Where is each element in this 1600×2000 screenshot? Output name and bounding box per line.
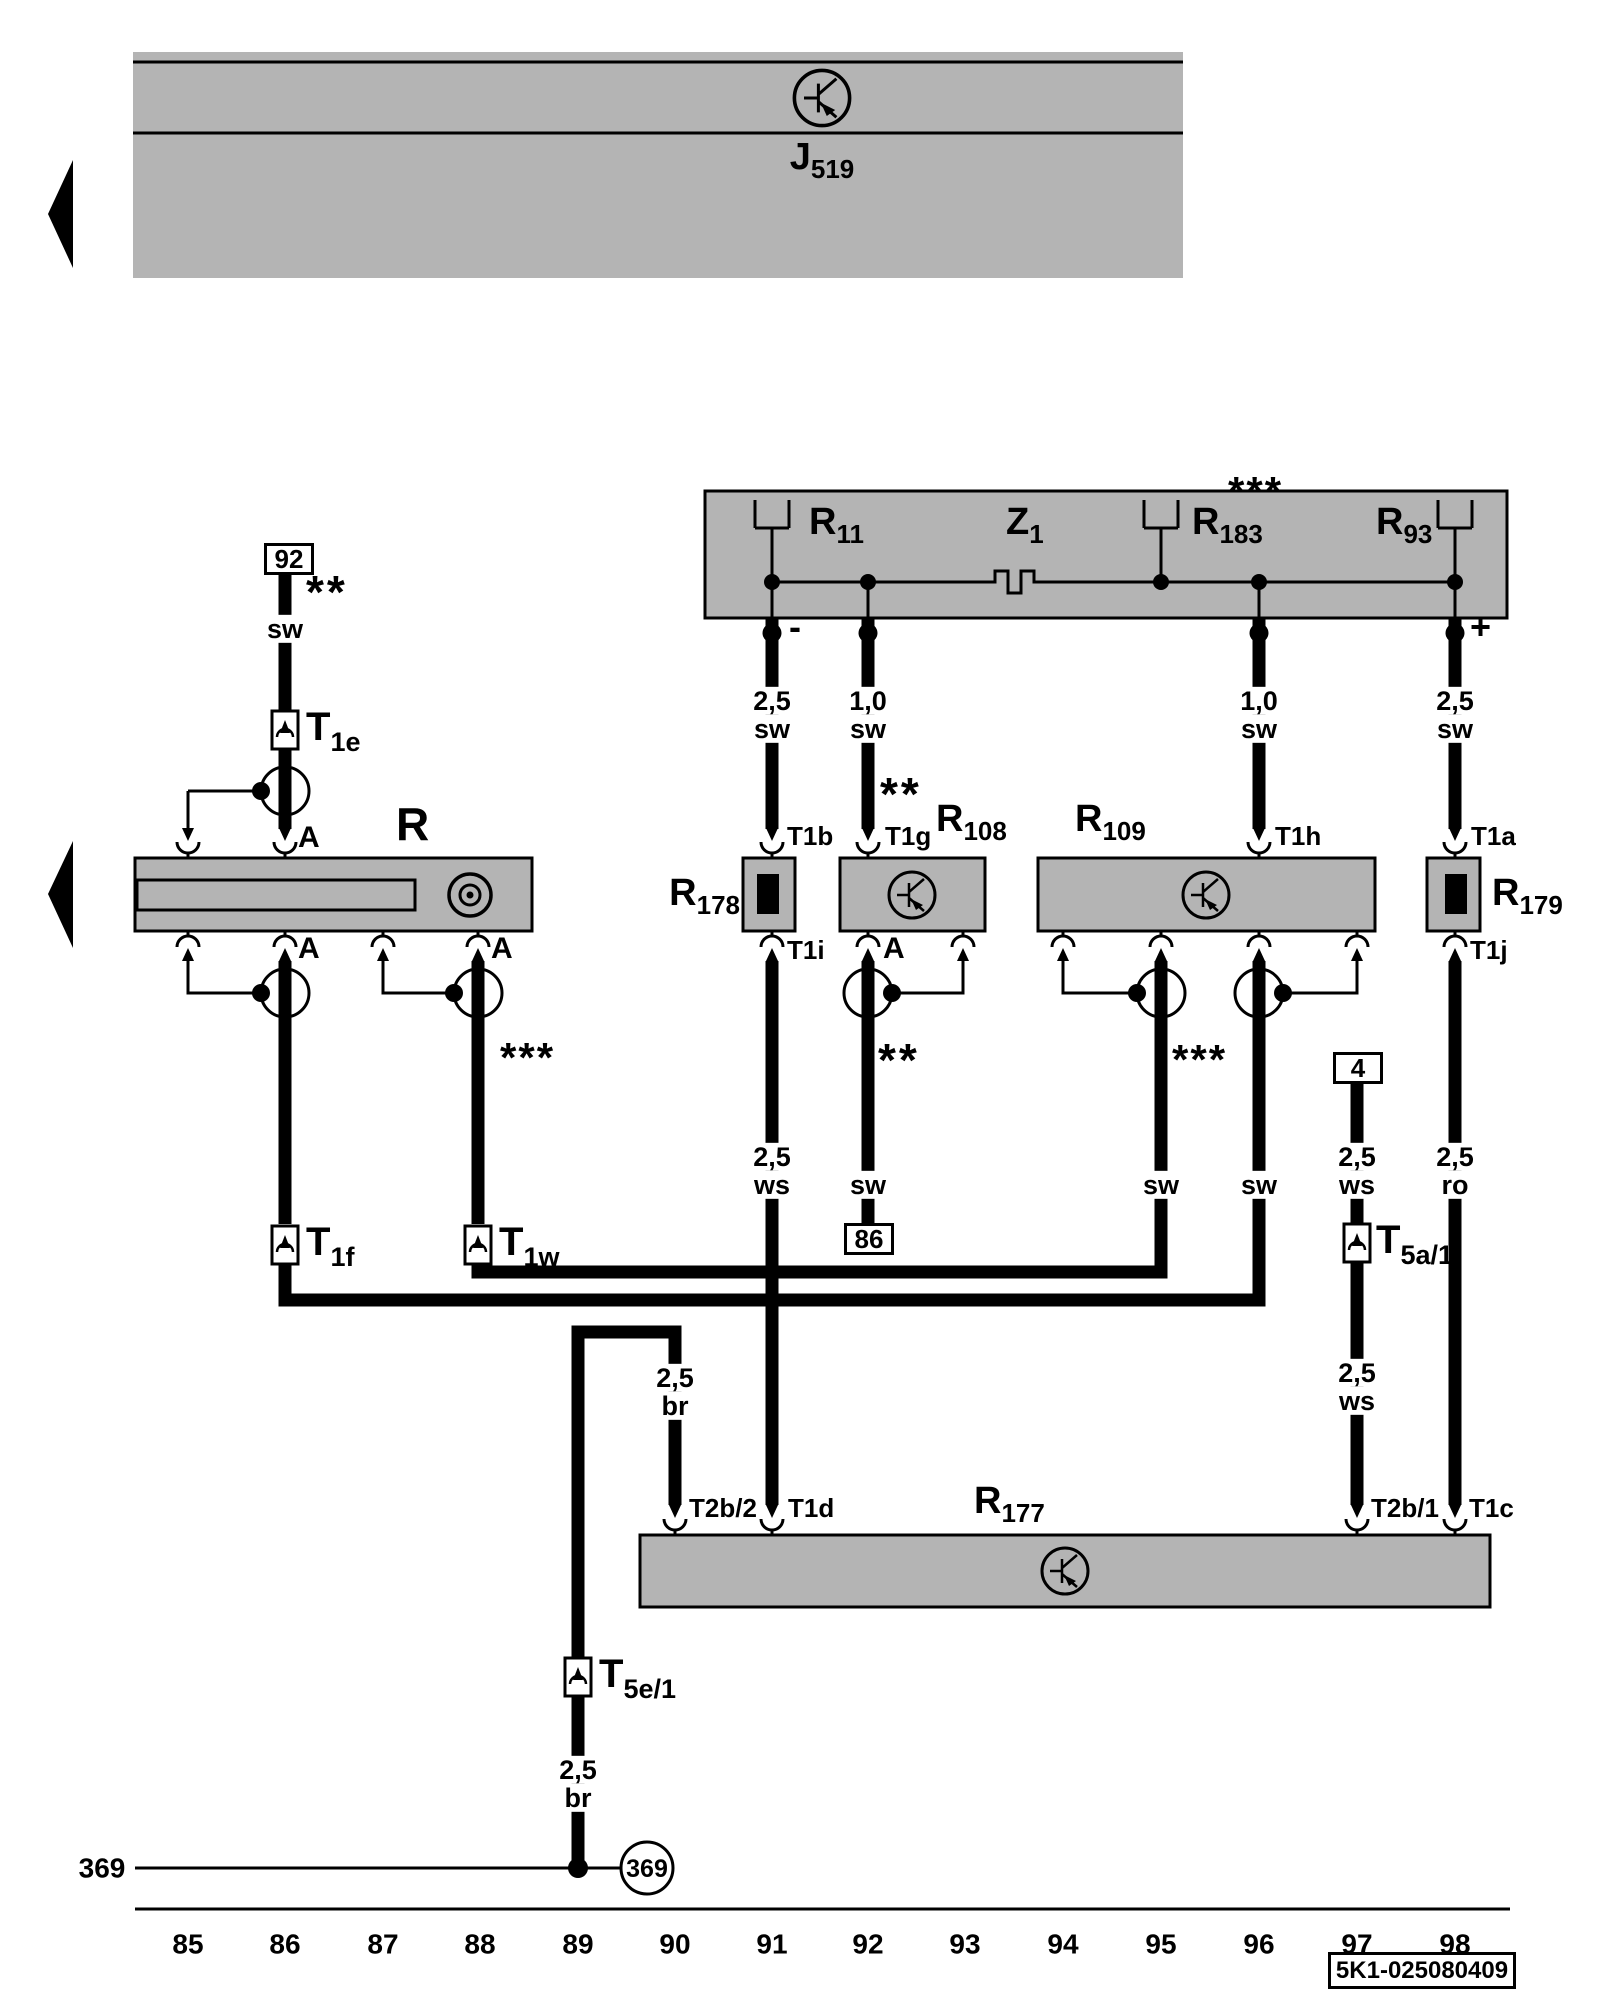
r179-box [1427,858,1480,931]
wire-gauge-label: 2,5 [1333,1359,1381,1387]
track-number: 86 [269,1929,300,1958]
connector-t5a1-icon [1344,1224,1370,1262]
connector-t1w-icon [465,1226,491,1264]
note-three-star: *** [500,1036,555,1080]
track-number: 96 [1243,1929,1274,1958]
connector-t1e-icon [272,711,298,749]
label-plus: + [1470,608,1491,646]
radio-box [135,858,532,931]
label-t1d: T1d [788,1495,834,1522]
label-t5e1: T5e/1 [599,1653,676,1695]
wire-gauge-label: 1,0 [844,687,892,715]
label-t1h: T1h [1275,823,1321,850]
track-number: 87 [367,1929,398,1958]
ground-label-left: 369 [79,1853,126,1882]
label-t2b1: T2b/1 [1371,1495,1439,1522]
control-module-j519-box [133,52,1183,278]
wire-gauge-label: 2,5 [1431,687,1479,715]
note-three-star: *** [1228,470,1283,514]
wire-color-label: sw [1236,715,1282,743]
track-number: 91 [756,1929,787,1958]
label-r109: R109 [1075,800,1146,840]
label-j519: J519 [790,138,855,178]
ground-label-circle: 369 [626,1856,668,1882]
wire-color-label: sw [845,1171,891,1199]
wire-color-label: sw [1236,1171,1282,1199]
wiring-linework [0,0,1600,2000]
connector-86-box: 86 [844,1223,894,1255]
wire-color-label: sw [1432,715,1478,743]
wire-color-label: ws [749,1171,795,1199]
shielded-lead-top [188,573,309,829]
wire-gauge-label: 2,5 [748,1143,796,1171]
connector-4-box: 4 [1333,1052,1383,1084]
label-t1j: T1j [1470,937,1508,964]
r177-box [640,1535,1490,1607]
wiring-diagram-page: J519 R11 Z1 R183 R93 *** - + 92 ** sw T1… [0,0,1600,2000]
wire-gauge-label: 2,5 [748,687,796,715]
note-two-star: ** [306,568,348,616]
track-number: 89 [562,1929,593,1958]
note-two-star: ** [878,1036,920,1084]
label-r178: R178 [660,874,740,914]
label-r177: R177 [974,1482,1045,1522]
wire-gauge-label: 1,0 [1235,687,1283,715]
wire-color-label: sw [749,715,795,743]
label-t1e: T1e [306,706,360,748]
track-number: 88 [464,1929,495,1958]
track-number: 85 [172,1929,203,1958]
label-a-bottom-left: A [298,933,320,965]
wire-gauge-label: 2,5 [1333,1143,1381,1171]
label-radio-r: R [396,800,429,848]
track-number: 90 [659,1929,690,1958]
label-z1: Z1 [1006,503,1044,543]
wire-color-label: sw [845,715,891,743]
connector-t5e1-icon [565,1658,591,1696]
wire-gauge-label: 2,5 [651,1364,699,1392]
label-t1w: T1w [499,1221,559,1263]
label-t1a: T1a [1471,823,1516,850]
track-number: 93 [949,1929,980,1958]
label-t1g: T1g [885,823,931,850]
r178-box [743,858,795,931]
r109-shielded-leads [1063,961,1357,1017]
wire-gauge-label: 2,5 [1431,1143,1479,1171]
shielded-leads-bottom [188,961,502,1224]
label-r93: R93 [1376,503,1432,543]
wire-color-label: ws [1334,1387,1380,1415]
wire-color-label: sw [1138,1171,1184,1199]
label-r179: R179 [1492,874,1563,914]
label-t1f: T1f [306,1221,354,1263]
r109-box [1038,858,1375,931]
continuation-arrow-middle-icon [48,841,73,948]
label-a-r108: A [883,933,905,965]
label-t1b: T1b [787,823,833,850]
diagram-id-box: 5K1-025080409 [1328,1952,1516,1989]
r108-box [840,858,985,931]
label-minus: - [789,608,801,646]
label-t1c: T1c [1469,1495,1514,1522]
wire-color-label: ws [1334,1171,1380,1199]
track-number: 95 [1145,1929,1176,1958]
track-number: 92 [852,1929,883,1958]
wire-gauge-label: 2,5 [554,1756,602,1784]
wire-color-label: br [560,1784,597,1812]
wire-color-label: br [657,1392,694,1420]
label-r11: R11 [809,503,864,543]
label-a-top: A [298,822,320,854]
label-a-bottom-right: A [491,933,513,965]
note-three-star: *** [1172,1038,1227,1082]
track-number: 94 [1047,1929,1078,1958]
label-t5a1: T5a/1 [1376,1219,1453,1261]
label-t2b2: T2b/2 [689,1495,757,1522]
label-r108: R108 [936,800,1007,840]
wire-color-label: sw [262,615,308,643]
continuation-arrow-top-icon [48,160,73,268]
connector-t1f-icon [272,1226,298,1264]
note-two-star: ** [880,770,922,818]
label-t1i: T1i [787,937,825,964]
wire-color-label: ro [1437,1171,1474,1199]
